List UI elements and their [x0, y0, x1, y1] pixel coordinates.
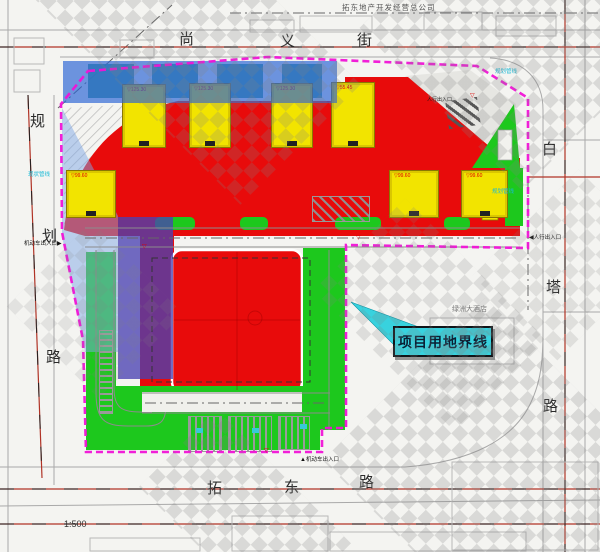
- boundary-callout-text: 项目用地界线: [398, 332, 488, 352]
- pipeline-note: 规划管线: [492, 190, 514, 196]
- street-name-top-char: 街: [357, 33, 372, 48]
- street-name-left-char: 路: [46, 350, 61, 365]
- central-building-details: [174, 252, 300, 390]
- pedestrian-entrance-label: ◀人行出入口: [529, 235, 561, 242]
- elevation-spot-mark: ▽: [264, 448, 269, 454]
- street-name-bottom-char: 拓: [207, 481, 222, 496]
- pipeline-note: 现状管线: [28, 173, 50, 179]
- overlay-linework-layer: [0, 0, 600, 552]
- elevation-spot-mark: ▽: [470, 93, 475, 99]
- street-name-right-char: 路: [543, 399, 558, 414]
- pedestrian-entrance-label: 人行出入口: [427, 98, 452, 103]
- developer-company-label: 拓东地产开发经营总公司: [342, 4, 436, 12]
- street-name-left-char: 规: [30, 114, 45, 129]
- entrance-arrow-icon: ▶: [57, 241, 62, 247]
- vehicle-entrance-label: ▲机动车出入口: [300, 457, 339, 464]
- street-name-bottom-char: 东: [284, 480, 299, 495]
- elevation-spot-mark: ▽: [356, 235, 361, 241]
- pipeline-note: 规划管线: [495, 70, 517, 76]
- site-plan-drawing: ▽125.30 ▽125.30 ▽125.30 ▽55.45 ▽99.60 ▽9…: [0, 0, 600, 552]
- vehicle-entrance-label: 机动车出入口▶: [24, 241, 62, 248]
- scale-label: 1:500: [64, 520, 87, 529]
- street-name-right-char: 白: [542, 142, 557, 157]
- street-name-right-char: 塔: [546, 280, 561, 295]
- street-name-bottom-char: 路: [359, 475, 374, 490]
- boundary-callout-box: 项目用地界线: [393, 326, 493, 357]
- hotel-label: 绿洲大酒店: [452, 306, 487, 313]
- street-name-top-char: 义: [280, 34, 295, 49]
- street-name-top-char: 尚: [179, 32, 194, 47]
- elevation-spot-mark: ▽: [142, 244, 147, 250]
